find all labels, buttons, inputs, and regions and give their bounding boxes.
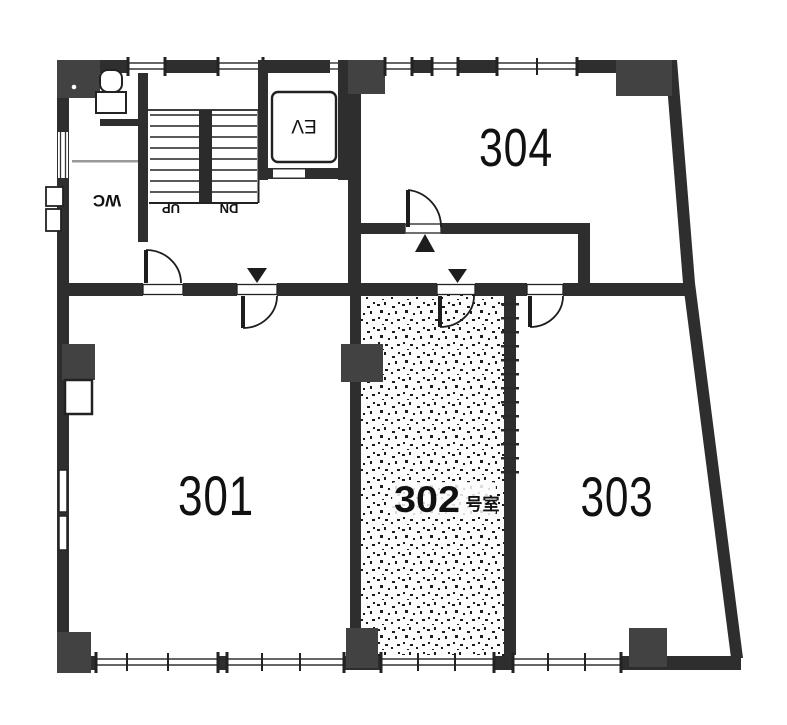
left-wall-slot-1	[59, 470, 67, 512]
room-301-label: 301	[178, 464, 254, 527]
meter-box-2	[46, 209, 61, 231]
floor-plan-page: WC UP DN EV	[0, 0, 787, 725]
column-stair-top	[345, 60, 385, 94]
room-303-label: 303	[581, 465, 654, 528]
wc-alcove-wall	[100, 119, 146, 126]
left-wall-slot-2	[59, 516, 67, 550]
column-301-302-top	[341, 344, 383, 382]
room-304-label: 304	[479, 118, 553, 178]
toilet-tank	[96, 92, 126, 113]
column-top-left	[57, 60, 100, 98]
wall-corridor-end	[578, 223, 590, 296]
stair-down-label: DN	[220, 201, 239, 216]
toilet-bowl	[100, 70, 122, 92]
stair-stringer	[199, 110, 212, 203]
left-window-slot	[58, 132, 68, 178]
elevator-label: EV	[291, 115, 317, 136]
wc-shelf-line	[72, 160, 138, 163]
wall-304-lower-left	[348, 223, 405, 234]
column-dot	[72, 85, 77, 90]
column-301-302-bottom	[346, 628, 378, 668]
wall-304-lower-right	[441, 223, 587, 234]
floor-plan-canvas: WC UP DN EV	[0, 0, 787, 725]
column-bottom-left	[57, 632, 91, 673]
column-301-left	[62, 344, 95, 380]
column-304-top-right	[616, 60, 672, 96]
stair-up-label: UP	[162, 201, 180, 216]
pipe-shaft-box	[65, 380, 92, 414]
wc-label: WC	[93, 191, 121, 210]
ev-shaft-left-wall	[258, 60, 268, 180]
column-303-bottom	[629, 628, 667, 667]
ev-door-slot	[273, 170, 305, 178]
wall-wc-right	[138, 60, 148, 242]
wall-302-303	[504, 296, 516, 660]
wall-stairblock-right	[348, 60, 361, 296]
meter-box-1	[46, 187, 63, 206]
ev-shaft-right-wall	[338, 60, 348, 180]
